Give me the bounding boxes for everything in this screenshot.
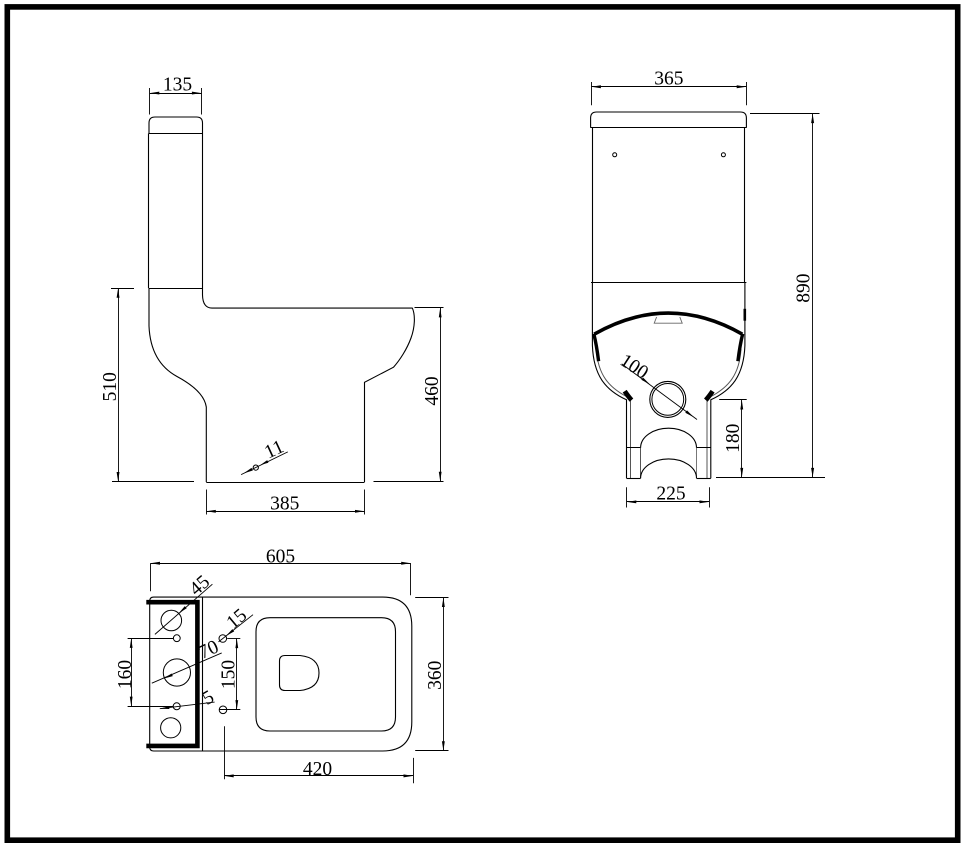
svg-text:510: 510 xyxy=(100,372,121,401)
svg-text:385: 385 xyxy=(270,494,299,515)
svg-text:360: 360 xyxy=(425,661,446,690)
svg-text:11: 11 xyxy=(261,436,287,463)
svg-text:365: 365 xyxy=(654,69,683,90)
svg-text:15: 15 xyxy=(223,605,251,634)
svg-text:890: 890 xyxy=(793,273,814,302)
svg-text:605: 605 xyxy=(266,546,295,567)
svg-text:225: 225 xyxy=(656,483,685,504)
svg-text:160: 160 xyxy=(115,660,136,689)
svg-text:135: 135 xyxy=(163,75,192,96)
svg-text:100: 100 xyxy=(616,350,652,384)
svg-text:5: 5 xyxy=(199,687,218,710)
svg-text:150: 150 xyxy=(219,660,240,689)
svg-text:45: 45 xyxy=(186,571,214,600)
svg-text:460: 460 xyxy=(422,376,443,405)
svg-text:420: 420 xyxy=(303,759,332,780)
svg-text:180: 180 xyxy=(723,424,744,453)
